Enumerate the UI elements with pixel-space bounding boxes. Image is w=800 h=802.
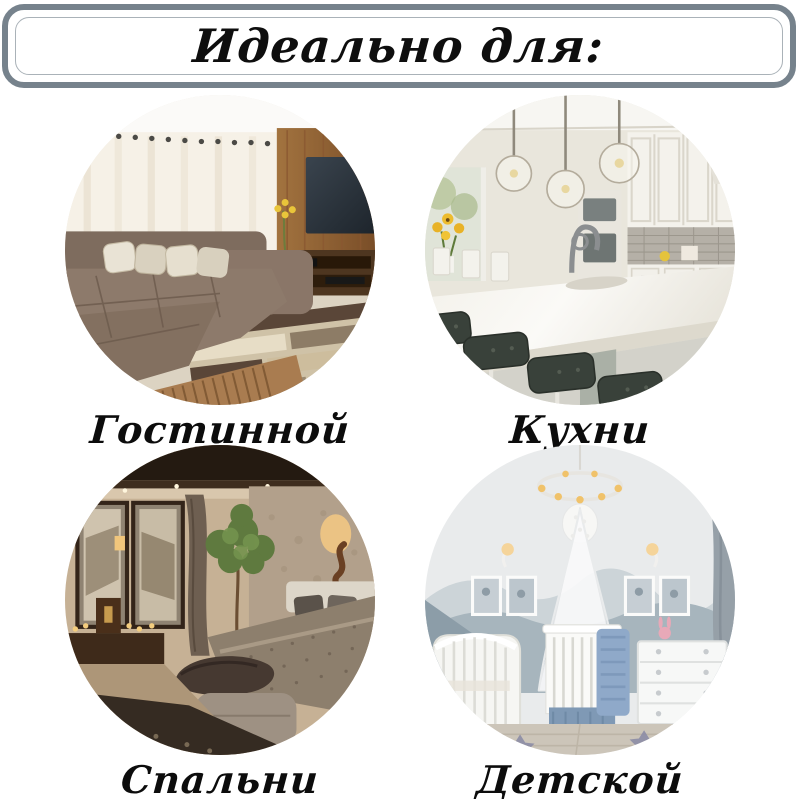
page-title: Идеально для:	[192, 19, 607, 73]
card-kitchen: Кухни	[425, 95, 735, 452]
living-room-photo	[65, 95, 375, 405]
kitchen-photo	[425, 95, 735, 405]
header-frame: Идеально для:	[2, 4, 796, 88]
header-inner-frame: Идеально для:	[15, 17, 783, 75]
caption-nursery: Детской	[423, 757, 736, 802]
card-living-room: Гостинной	[65, 95, 375, 452]
nursery-photo	[425, 445, 735, 755]
caption-bedroom: Спальни	[63, 757, 376, 802]
bedroom-photo	[65, 445, 375, 755]
card-nursery: Детской	[425, 445, 735, 802]
card-bedroom: Спальни	[65, 445, 375, 802]
